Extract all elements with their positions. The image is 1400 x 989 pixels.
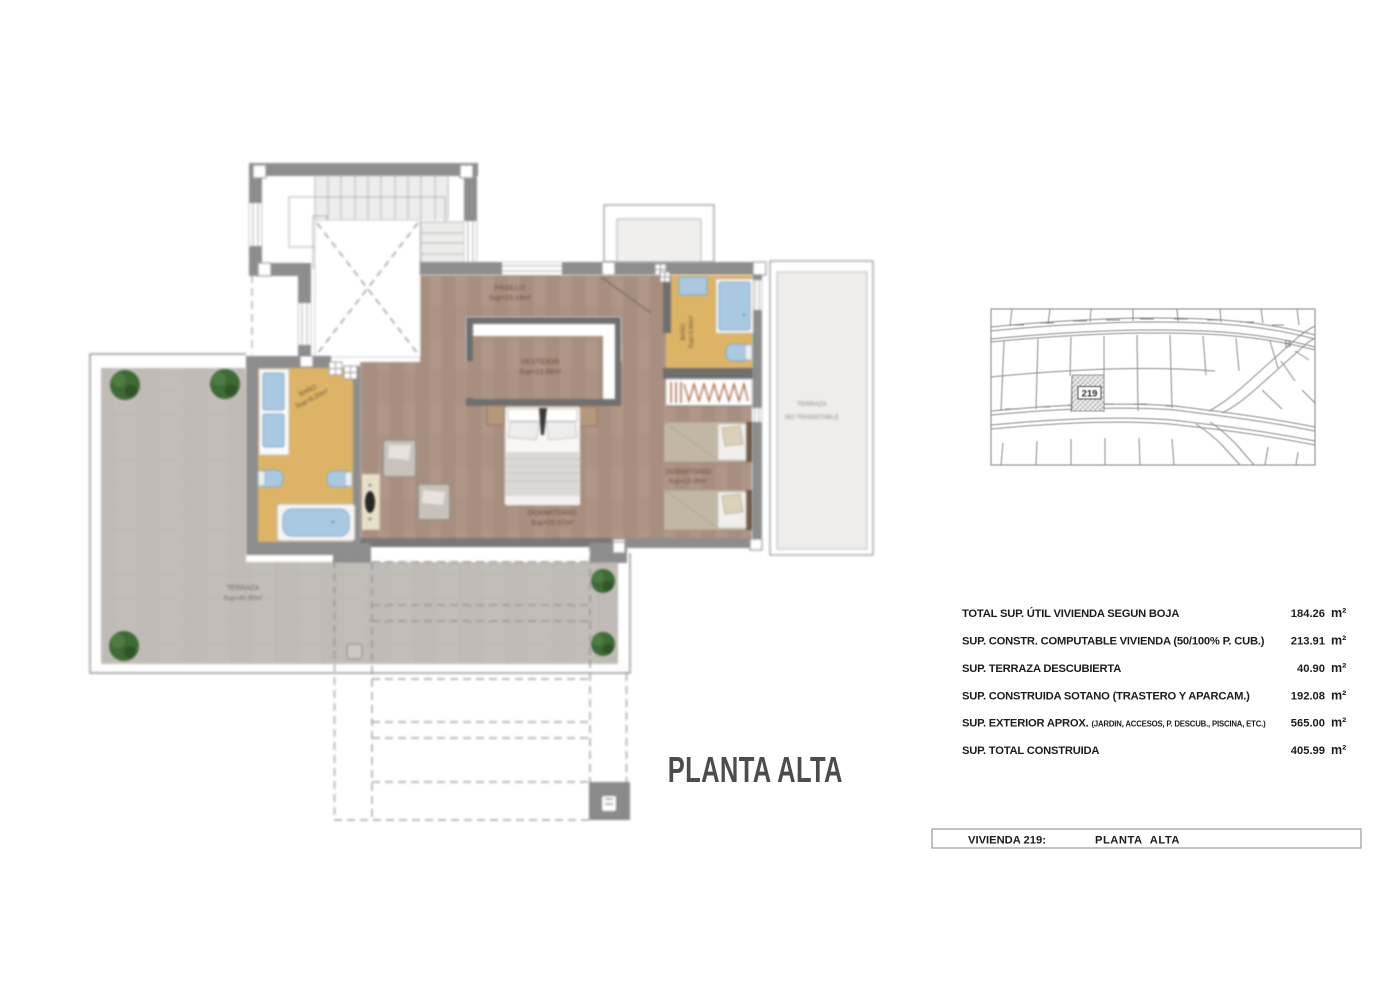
svg-text:m²: m²: [1331, 689, 1346, 703]
svg-text:TOTAL SUP. ÚTIL VIVIENDA SEGUN: TOTAL SUP. ÚTIL VIVIENDA SEGUN BOJA: [962, 607, 1179, 620]
svg-text:m²: m²: [1331, 716, 1346, 730]
svg-text:DORMITORIO: DORMITORIO: [665, 469, 711, 476]
svg-text:VIVIENDA 219:: VIVIENDA 219:: [968, 835, 1046, 847]
svg-text:192.08: 192.08: [1291, 691, 1325, 703]
svg-text:Sup=13.39m²: Sup=13.39m²: [668, 478, 708, 485]
svg-text:m²: m²: [1331, 606, 1346, 620]
svg-text:BAÑO: BAÑO: [680, 323, 687, 340]
svg-text:SUP. TERRAZA DESCUBIERTA: SUP. TERRAZA DESCUBIERTA: [962, 663, 1121, 675]
svg-text:Sup=3.80m²: Sup=3.80m²: [689, 316, 695, 349]
svg-text:40.90: 40.90: [1297, 663, 1325, 675]
svg-text:SUP. TOTAL CONSTRUIDA: SUP. TOTAL CONSTRUIDA: [962, 745, 1099, 757]
svg-text:SUP. EXTERIOR APROX. (JARDIN,: SUP. EXTERIOR APROX. (JARDIN, ACCESOS, P…: [962, 718, 1266, 730]
svg-text:Sup=40.90m²: Sup=40.90m²: [223, 595, 263, 602]
svg-text:TERRAZA: TERRAZA: [797, 401, 827, 408]
svg-text:m²: m²: [1331, 634, 1346, 648]
svg-text:DORMITORIO: DORMITORIO: [528, 508, 577, 517]
svg-text:PASILLO: PASILLO: [495, 283, 526, 292]
svg-text:184.26: 184.26: [1291, 608, 1325, 620]
svg-text:VESTIDOR: VESTIDOR: [521, 357, 560, 366]
svg-text:m²: m²: [1331, 743, 1346, 757]
svg-text:TERRAZA: TERRAZA: [227, 585, 260, 592]
svg-text:SUP. CONSTR. COMPUTABLE VIVIEN: SUP. CONSTR. COMPUTABLE VIVIENDA (50/100…: [962, 636, 1265, 648]
svg-text:Sup=25.07m²: Sup=25.07m²: [531, 520, 574, 527]
svg-text:219: 219: [1082, 389, 1098, 400]
svg-text:213.91: 213.91: [1291, 636, 1325, 648]
svg-text:B: B: [1285, 339, 1292, 350]
svg-text:m²: m²: [1331, 661, 1346, 675]
svg-text:PLANTA ALTA: PLANTA ALTA: [668, 748, 843, 790]
svg-text:Sup=13.88m²: Sup=13.88m²: [519, 369, 562, 376]
svg-text:405.99: 405.99: [1291, 745, 1325, 757]
svg-text:SUP. CONSTRUIDA SOTANO (TRASTE: SUP. CONSTRUIDA SOTANO (TRASTERO Y APARC…: [962, 691, 1250, 703]
svg-text:Sup=15.19m²: Sup=15.19m²: [489, 295, 532, 302]
svg-text:565.00: 565.00: [1291, 718, 1325, 730]
svg-text:NO TRANSITABLE: NO TRANSITABLE: [785, 414, 839, 421]
svg-text:PLANTA ALTA: PLANTA ALTA: [1095, 835, 1180, 847]
